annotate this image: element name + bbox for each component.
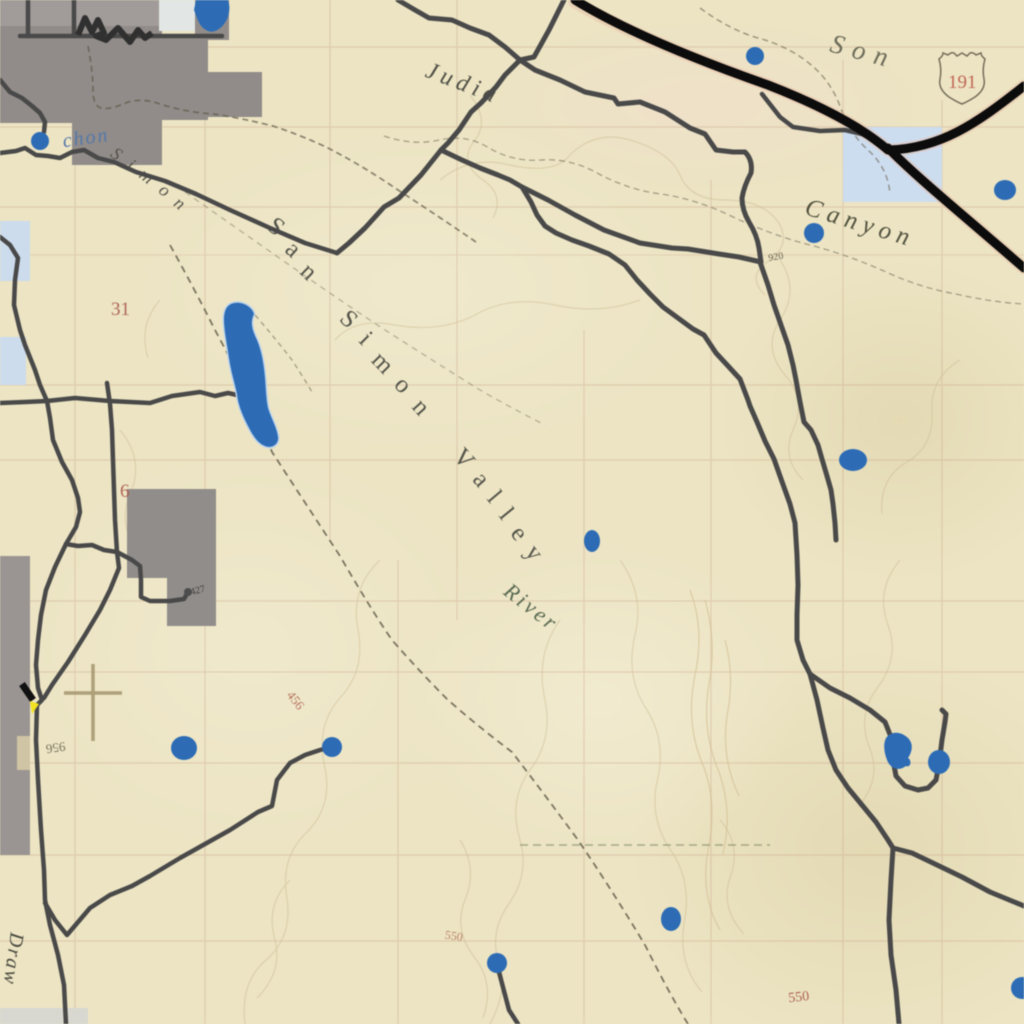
- svg-text:956: 956: [45, 739, 67, 757]
- svg-text:550: 550: [788, 989, 810, 1006]
- svg-text:6: 6: [120, 481, 130, 502]
- svg-text:31: 31: [111, 299, 130, 320]
- svg-text:191: 191: [948, 72, 977, 93]
- svg-text:550: 550: [444, 928, 464, 944]
